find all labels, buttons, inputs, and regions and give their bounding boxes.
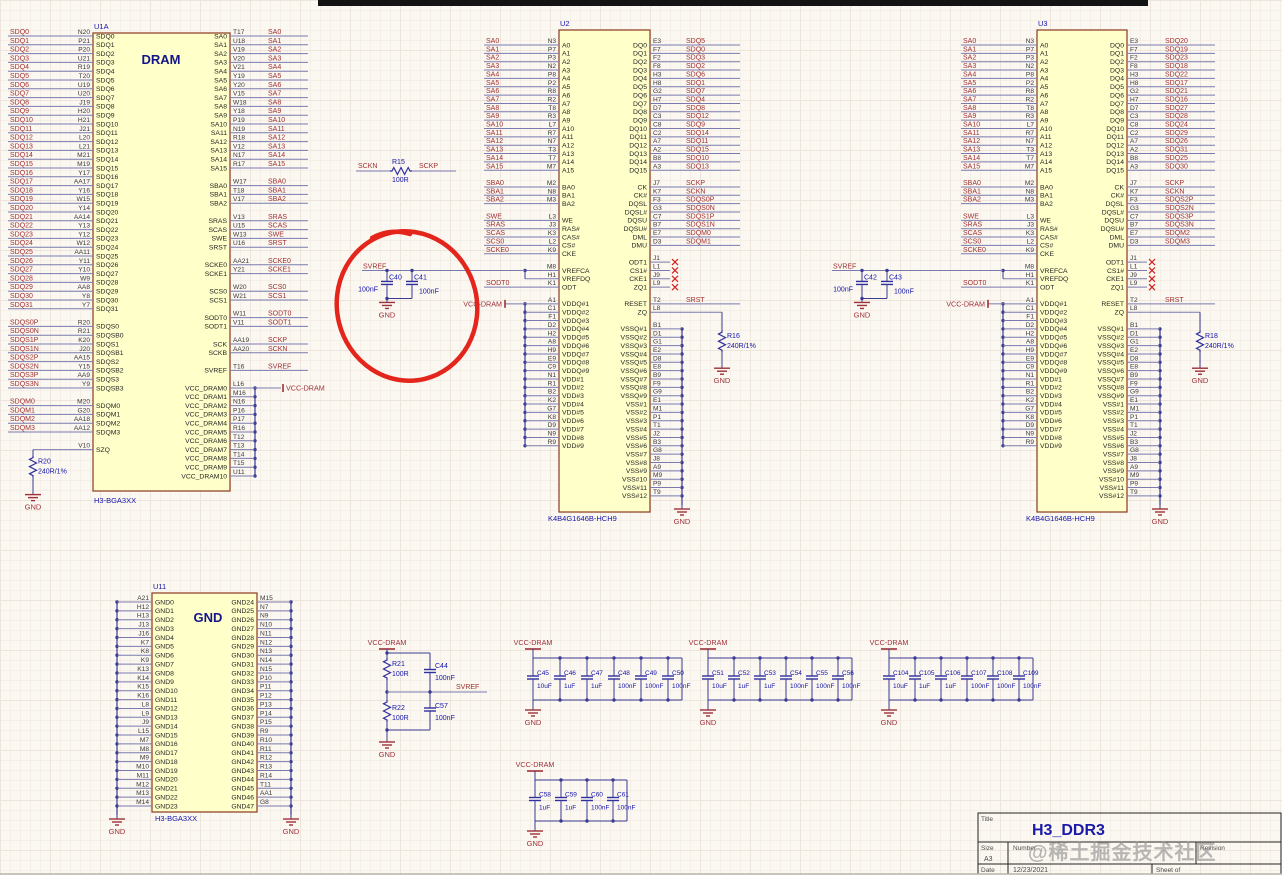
pin-name: SDQ23: [96, 236, 119, 243]
pin-number: D1: [1130, 330, 1139, 337]
value-C56: 100nF: [842, 683, 860, 690]
pin-number: Y12: [78, 231, 90, 238]
pin-name: VDDQ#1: [562, 301, 589, 308]
pin-number: E7: [653, 230, 661, 237]
pin-name: SDQM3: [96, 429, 120, 436]
ref-C105: C105: [919, 670, 935, 677]
pin-name: SDQ4: [96, 69, 115, 76]
pin-number: R9: [548, 439, 557, 446]
pin-name: VSS#8: [626, 460, 647, 467]
pin-name: DQSL: [1105, 201, 1124, 208]
pin-name: VCC_DRAM10: [181, 473, 227, 480]
junction-dot: [611, 778, 614, 781]
net-label: SA11: [486, 130, 503, 137]
pin-number: T3: [1026, 147, 1034, 154]
pin-number: K3: [1026, 230, 1034, 237]
pin-name: A14: [1040, 159, 1052, 166]
pin-number: Y9: [82, 381, 90, 388]
pin-number: AA9: [78, 372, 91, 379]
pin-name: RAS#: [562, 226, 580, 233]
pin-name: WE: [562, 218, 573, 225]
net-label: SCS1: [268, 293, 286, 300]
pin-name: VCC_DRAM1: [185, 394, 227, 401]
resistor-R20: [30, 456, 37, 478]
net-label: SDQM2: [10, 416, 35, 423]
pin-name: GND16: [155, 741, 178, 748]
pin-number: T17: [233, 29, 245, 36]
pin-number: J2: [653, 430, 660, 437]
pin-number: E1: [1130, 397, 1138, 404]
net-label: SDQ23: [1165, 55, 1188, 62]
pin-number: R7: [1026, 130, 1035, 137]
pin-number: P17: [233, 416, 245, 423]
pin-number: R21: [78, 328, 90, 335]
value-C54: 100nF: [790, 683, 808, 690]
pin-name: A0: [1040, 42, 1049, 49]
pin-number: D7: [1130, 105, 1139, 112]
pin-name: A9: [1040, 117, 1049, 124]
pin-number: G3: [653, 205, 662, 212]
pin-name: VSS#7: [626, 451, 647, 458]
pin-name: GND47: [231, 803, 254, 810]
pin-number: L8: [142, 701, 150, 708]
net-label: SBA0: [963, 180, 981, 187]
pin-number: T16: [233, 363, 245, 370]
pin-name: SDQ29: [96, 289, 119, 296]
pin-number: L15: [138, 728, 149, 735]
pin-number: L9: [653, 280, 661, 287]
ref-C60: C60: [591, 792, 603, 799]
pin-number: N12: [260, 639, 272, 646]
pin-name: SDQSB2: [96, 368, 124, 375]
resistor-R15: [390, 168, 412, 175]
value-C107: 100nF: [971, 683, 989, 690]
pin-number: M8: [1025, 263, 1034, 270]
net-label: SRAS: [268, 214, 287, 221]
net-label: SA3: [963, 63, 976, 70]
pin-number: M9: [1130, 472, 1139, 479]
pin-name: A4: [562, 76, 571, 83]
net-label: SDQ29: [1165, 130, 1188, 137]
pin-name: VSS#4: [626, 426, 647, 433]
net-label: SDQ30: [10, 293, 33, 300]
pin-name: SDQ25: [96, 253, 119, 260]
pin-number: K1: [548, 280, 556, 287]
pin-name: DQSL#: [1102, 209, 1125, 216]
pin-number: T11: [260, 781, 271, 788]
pin-name: CKE: [562, 251, 576, 258]
pin-number: A7: [653, 138, 661, 145]
ic-ref-U1A: U1A: [94, 22, 109, 31]
net-label: SDQ0: [686, 46, 705, 53]
pin-number: N20: [78, 29, 90, 36]
net-label: SDQ10: [10, 117, 33, 124]
junction-dot: [939, 656, 942, 659]
ref-C104: C104: [893, 670, 909, 677]
pin-number: J2: [1130, 430, 1137, 437]
pin-number: R20: [78, 319, 90, 326]
net-label: SDQ8: [10, 99, 29, 106]
net-label: SA0: [963, 38, 976, 45]
pin-name: A6: [1040, 92, 1049, 99]
pin-number: J8: [653, 456, 660, 463]
value-R22: 100R: [392, 715, 409, 722]
pin-name: VREFDQ: [562, 276, 590, 283]
pin-number: K8: [548, 414, 556, 421]
pin-number: C9: [1026, 364, 1035, 371]
junction-dot: [913, 698, 916, 701]
net-label: SCKE0: [963, 247, 986, 254]
pin-name: GND8: [155, 670, 174, 677]
pin-number: B7: [1130, 222, 1138, 229]
value-R18: 240R/1%: [1205, 343, 1234, 350]
net-label: SDQ6: [10, 82, 29, 89]
pin-name: DMU: [632, 243, 648, 250]
pin-number: J3: [1027, 222, 1034, 229]
resistor-R16: [719, 330, 726, 352]
net-label: SA7: [486, 96, 499, 103]
net-label: SDQ23: [10, 231, 33, 238]
pin-name: CK: [1115, 184, 1125, 191]
pin-number: Y21: [233, 267, 245, 274]
pin-number: C3: [1130, 113, 1139, 120]
pin-name: GND27: [231, 626, 254, 633]
pin-number: R11: [260, 746, 272, 753]
pin-name: VCC_DRAM4: [185, 421, 227, 428]
net-label: SDQ27: [1165, 105, 1188, 112]
value-C104: 10uF: [893, 683, 908, 690]
net-label: SDQS1P: [10, 337, 39, 344]
pin-name: SCKE1: [205, 271, 228, 278]
pin-number: AA8: [78, 284, 91, 291]
ref-R18: R18: [1205, 333, 1218, 340]
junction-dot: [612, 698, 615, 701]
resistor-R22: [384, 700, 391, 722]
pin-number: A8: [1026, 339, 1034, 346]
value-C52: 1uF: [738, 683, 749, 690]
pin-name: GND43: [231, 768, 254, 775]
ref-R21: R21: [392, 661, 405, 668]
pin-number: U19: [78, 82, 90, 89]
pin-name: DQ13: [629, 151, 647, 158]
net-label: SDQ1: [10, 38, 29, 45]
pin-number: D8: [1130, 355, 1139, 362]
pin-name: GND37: [231, 715, 254, 722]
pin-name: DQ9: [633, 117, 647, 124]
pin-name: GND36: [231, 706, 254, 713]
net-label: SCKN: [358, 163, 377, 170]
pin-name: SDQ1: [96, 42, 115, 49]
pin-name: SA15: [210, 165, 227, 172]
net-label: SDQ27: [10, 267, 33, 274]
pin-number: L3: [1027, 213, 1035, 220]
value-R20: 240R/1%: [38, 469, 67, 476]
pin-number: T20: [79, 73, 91, 80]
junction-dot: [810, 698, 813, 701]
pin-number: A1: [548, 297, 556, 304]
pin-name: VSS#9: [1103, 468, 1124, 475]
pin-number: K14: [137, 675, 149, 682]
pin-number: P9: [1130, 481, 1138, 488]
pin-number: U18: [233, 38, 245, 45]
pin-name: SDQ12: [96, 139, 119, 146]
net-label: SDQ16: [1165, 96, 1188, 103]
pin-number: B8: [653, 155, 661, 162]
pin-number: AA12: [74, 425, 90, 432]
net-label: SA3: [486, 63, 499, 70]
gnd-label: GND: [881, 718, 898, 727]
pin-number: V10: [78, 443, 90, 450]
pin-number: V21: [233, 64, 245, 71]
net-label: SRST: [268, 240, 287, 247]
pin-number: P1: [1130, 414, 1138, 421]
pin-number: K8: [1026, 414, 1034, 421]
net-label: SA2: [268, 47, 281, 54]
pin-name: DQ12: [629, 143, 647, 150]
net-label: SCAS: [268, 223, 287, 230]
pin-name: SA10: [210, 121, 227, 128]
pin-name: SBA2: [210, 201, 228, 208]
pin-number: U11: [233, 469, 245, 476]
pin-name: SA12: [210, 139, 227, 146]
pin-number: J16: [138, 630, 149, 637]
pin-number: M3: [547, 197, 556, 204]
pin-number: N8: [548, 188, 557, 195]
net-label: SDQ26: [1165, 138, 1188, 145]
ref-R22: R22: [392, 705, 405, 712]
pin-number: P8: [1026, 71, 1034, 78]
ref-C109: C109: [1023, 670, 1039, 677]
junction-dot: [611, 819, 614, 822]
pin-number: K7: [653, 188, 661, 195]
pin-number: T2: [653, 297, 661, 304]
pin-number: R9: [260, 728, 269, 735]
pin-name: VDD#8: [1040, 435, 1062, 442]
pin-number: V17: [233, 196, 245, 203]
pin-name: VSS#1: [1103, 401, 1124, 408]
pin-number: Y17: [78, 170, 90, 177]
pin-name: VDD#3: [562, 393, 584, 400]
junction-dot: [836, 698, 839, 701]
pin-number: Y16: [78, 187, 90, 194]
net-label: SCKP: [419, 163, 438, 170]
pin-number: B3: [653, 439, 661, 446]
ic-ref-U3: U3: [1038, 19, 1048, 28]
pin-name: VSSQ#6: [1098, 368, 1125, 375]
pin-number: K7: [141, 639, 149, 646]
junction-dot: [885, 269, 888, 272]
net-label: SODT0: [486, 280, 509, 287]
pin-name: DQSU#: [624, 226, 648, 233]
ref-C58: C58: [539, 792, 551, 799]
net-label: SDQ25: [1165, 155, 1188, 162]
pin-number: M7: [547, 163, 556, 170]
pin-name: GND22: [155, 794, 178, 801]
pin-number: L9: [142, 710, 150, 717]
pin-number: D9: [548, 422, 557, 429]
ic-title-U1A: DRAM: [142, 52, 181, 67]
pin-name: SDQS1: [96, 341, 119, 348]
pin-name: VDDQ#5: [562, 335, 589, 342]
net-label: SVREF: [363, 263, 386, 270]
pin-name: BA1: [562, 193, 575, 200]
net-label: SVREF: [833, 263, 856, 270]
net-label: SCKN: [268, 346, 287, 353]
net-label: SDQ3: [686, 55, 705, 62]
pin-name: VDD#9: [1040, 443, 1062, 450]
pin-name: DQSL#: [625, 209, 648, 216]
pin-number: Y8: [82, 293, 90, 300]
pin-name: SDQSB3: [96, 385, 124, 392]
pin-number: T2: [1130, 297, 1138, 304]
pin-number: N7: [260, 604, 269, 611]
pin-number: L2: [549, 238, 557, 245]
pin-name: VDD#6: [1040, 418, 1062, 425]
pin-name: A1: [562, 51, 571, 58]
pin-name: GND41: [231, 750, 254, 757]
net-label: SDQ0: [10, 29, 29, 36]
net-label: SWE: [486, 213, 502, 220]
pin-name: VDDQ#8: [1040, 360, 1067, 367]
pin-number: M20: [77, 399, 90, 406]
pin-name: VDD#6: [562, 418, 584, 425]
pin-number: L3: [549, 213, 557, 220]
power-label: VCC-DRAM: [286, 384, 325, 393]
pin-number: R12: [260, 755, 272, 762]
pin-name: VSS#12: [1099, 493, 1124, 500]
junction-dot: [939, 698, 942, 701]
net-label: SA1: [486, 46, 499, 53]
power-label: VCC-DRAM: [516, 760, 555, 769]
pin-name: DQ13: [1106, 151, 1124, 158]
pin-name: SDQ3: [96, 60, 115, 67]
pin-name: ZQ: [1115, 310, 1124, 317]
sheet-label: Sheet of: [1156, 867, 1180, 874]
net-label: SWE: [268, 231, 284, 238]
pin-name: DQ2: [633, 59, 647, 66]
junction-dot: [385, 728, 388, 731]
pin-name: A15: [1040, 168, 1052, 175]
pin-name: A8: [562, 109, 571, 116]
pin-name: GND13: [155, 715, 178, 722]
net-label: SCS0: [268, 284, 286, 291]
value-C45: 10uF: [537, 683, 552, 690]
net-label: SA14: [268, 152, 285, 159]
net-label: SDQ30: [1165, 163, 1188, 170]
net-label: SDQ19: [1165, 46, 1188, 53]
pin-name: GND28: [231, 635, 254, 642]
net-label: SDQ7: [10, 91, 29, 98]
junction-dot: [1017, 656, 1020, 659]
pin-number: L1: [1130, 263, 1138, 270]
pin-number: T14: [233, 451, 245, 458]
pin-number: N2: [548, 63, 557, 70]
pin-number: P3: [548, 55, 556, 62]
net-label: SA9: [486, 113, 499, 120]
pin-name: GND7: [155, 661, 174, 668]
pin-number: P15: [260, 719, 272, 726]
pin-name: ZQ1: [1111, 284, 1124, 291]
pin-name: SDQ14: [96, 157, 119, 164]
junction-dot: [558, 656, 561, 659]
pin-number: L8: [653, 305, 661, 312]
gnd-label: GND: [283, 827, 300, 836]
pin-number: N19: [233, 126, 245, 133]
pin-name: GND12: [155, 706, 178, 713]
pin-name: SDQ9: [96, 113, 115, 120]
ref-C56: C56: [842, 670, 854, 677]
pin-number: D3: [653, 238, 662, 245]
pin-name: DQSL: [628, 201, 647, 208]
pin-name: VSSQ#8: [621, 385, 648, 392]
ref-C107: C107: [971, 670, 987, 677]
pin-name: A14: [562, 159, 574, 166]
net-label: SDQ24: [10, 240, 33, 247]
pin-name: BA0: [1040, 184, 1053, 191]
pin-number: G3: [1130, 205, 1139, 212]
net-label: SA7: [268, 91, 281, 98]
pin-name: VSS#2: [626, 410, 647, 417]
pin-number: W9: [80, 275, 90, 282]
pin-number: K13: [137, 666, 149, 673]
pin-number: U20: [78, 91, 90, 98]
pin-number: G7: [547, 405, 556, 412]
pin-name: BA2: [562, 201, 575, 208]
pin-name: DML: [633, 234, 648, 241]
pin-number: J19: [79, 99, 90, 106]
net-label: SA6: [963, 88, 976, 95]
net-label: SA11: [963, 130, 980, 137]
net-label: SA2: [963, 55, 976, 62]
net-label: SDQ14: [10, 152, 33, 159]
pin-number: N17: [233, 152, 245, 159]
value-C43: 100nF: [894, 288, 914, 295]
pin-name: VSSQ#9: [621, 393, 648, 400]
pin-number: M16: [233, 390, 246, 397]
pin-number: H9: [548, 347, 557, 354]
pin-name: RESET: [624, 301, 647, 308]
pin-number: M8: [547, 263, 556, 270]
pin-number: E3: [653, 38, 661, 45]
pin-name: GND34: [231, 688, 254, 695]
pin-name: VSSQ#3: [1098, 343, 1125, 350]
ref-C108: C108: [997, 670, 1013, 677]
pin-number: M10: [136, 764, 149, 771]
pin-name: VDD#4: [1040, 401, 1062, 408]
pin-name: SCKE0: [205, 262, 228, 269]
pin-number: U16: [233, 240, 245, 247]
net-label: SCKE0: [486, 247, 509, 254]
net-label: SBA0: [486, 180, 504, 187]
junction-dot: [639, 698, 642, 701]
net-label: SDQS0P: [10, 319, 39, 326]
pin-number: R8: [1026, 88, 1035, 95]
net-label: SA4: [486, 71, 499, 78]
pin-number: C3: [653, 113, 662, 120]
pin-number: B1: [1130, 322, 1138, 329]
net-label: SA7: [963, 96, 976, 103]
net-label: SDQ16: [10, 170, 33, 177]
pin-number: N8: [1026, 188, 1035, 195]
pin-name: ODT1: [629, 259, 647, 266]
pin-number: H8: [1130, 80, 1139, 87]
pin-number: B3: [1130, 439, 1138, 446]
pin-name: VDDQ#3: [1040, 318, 1067, 325]
pin-number: G8: [260, 799, 269, 806]
pin-name: VDD#1: [1040, 376, 1062, 383]
pin-number: W12: [76, 240, 90, 247]
pin-name: DQ15: [1106, 168, 1124, 175]
